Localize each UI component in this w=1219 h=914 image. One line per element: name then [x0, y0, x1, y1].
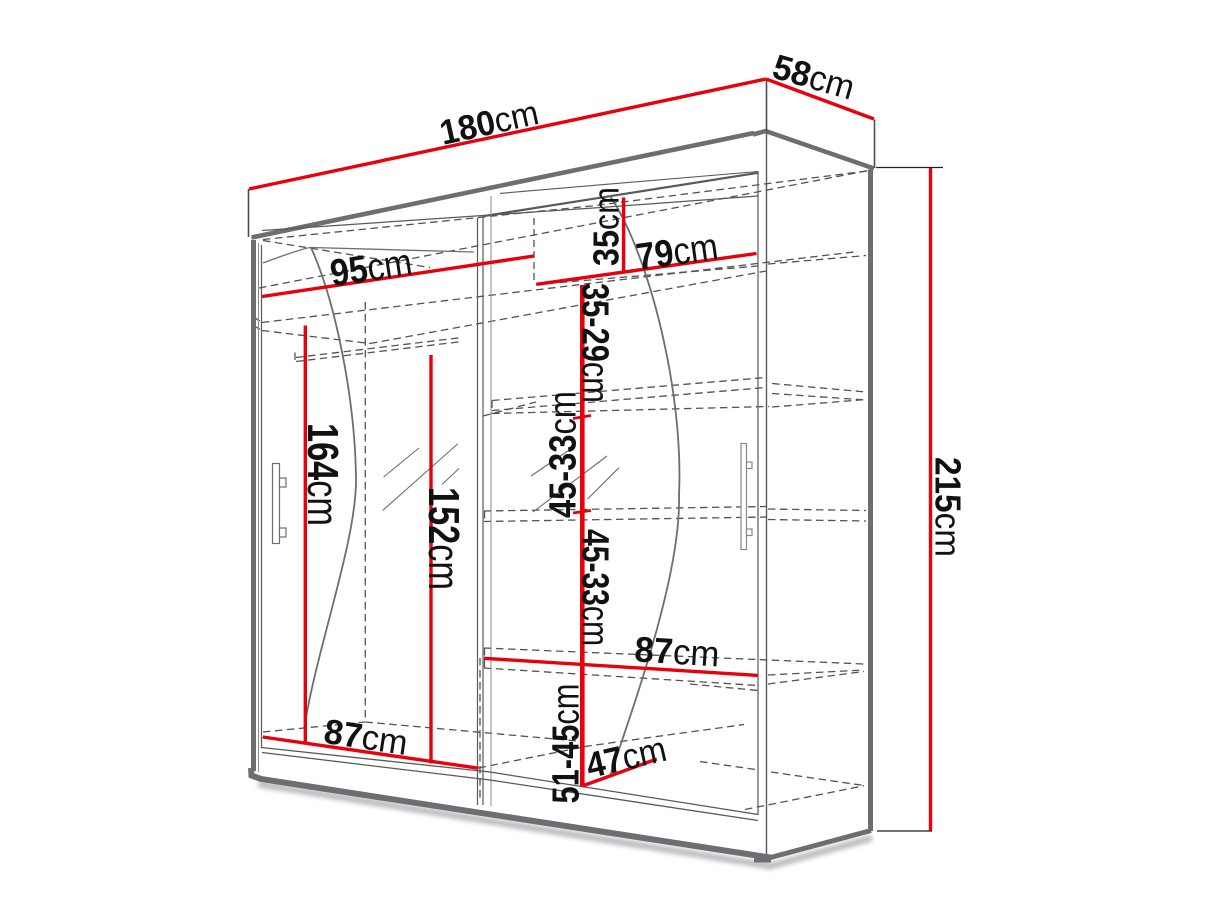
- svg-text:35-29cm: 35-29cm: [574, 283, 616, 403]
- svg-text:45-33cm: 45-33cm: [543, 391, 585, 518]
- svg-text:51-45cm: 51-45cm: [546, 684, 588, 804]
- svg-text:152cm: 152cm: [419, 487, 468, 590]
- svg-text:35cm: 35cm: [586, 187, 627, 266]
- svg-text:215cm: 215cm: [928, 457, 969, 557]
- svg-text:45-33cm: 45-33cm: [574, 529, 616, 646]
- svg-text:164cm: 164cm: [298, 423, 347, 526]
- svg-text:87cm: 87cm: [633, 628, 720, 674]
